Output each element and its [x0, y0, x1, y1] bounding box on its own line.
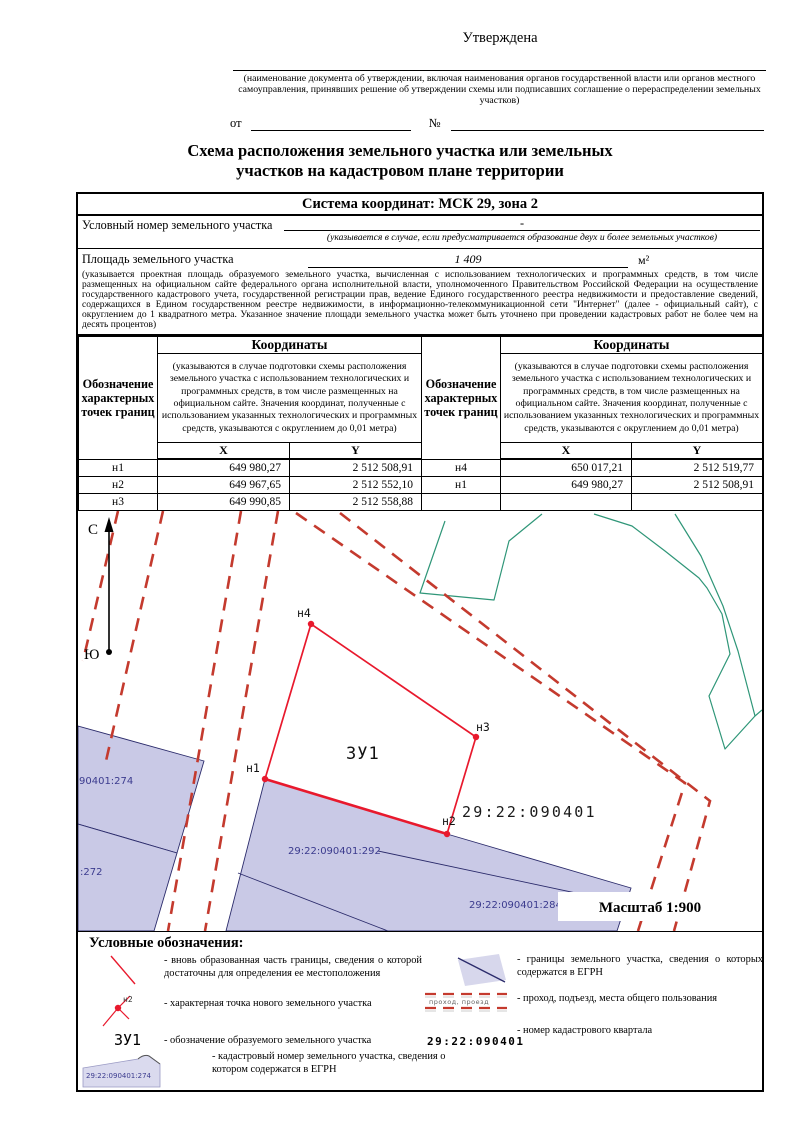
title-line-1: Схема расположения земельного участка ил… — [0, 141, 800, 160]
quarter-number-label: 29:22:090401 — [462, 803, 597, 821]
parcel-274-label: 90401:274 — [79, 776, 133, 787]
legend: Условные обозначения: - вновь образованн… — [78, 931, 762, 1086]
x-value: 649 967,65 — [158, 477, 290, 494]
new-boundary-line-icon — [108, 954, 138, 986]
point-n4-dot — [308, 621, 314, 627]
coords-note-right: (указываются в случае подготовки схемы р… — [501, 354, 763, 443]
legend-item-new-boundary: - вновь образованная часть границы, свед… — [164, 955, 422, 980]
map-drawing: н1 н2 н3 н4 ЗУ1 29:22:090401 90401:274 :… — [78, 511, 762, 931]
y-value: 2 512 519,77 — [632, 459, 763, 477]
area-label: Площадь земельного участка — [78, 252, 282, 268]
cadastral-map: н1 н2 н3 н4 ЗУ1 29:22:090401 90401:274 :… — [78, 511, 762, 931]
x-value: 649 990,85 — [158, 494, 290, 511]
y-value: 2 512 558,88 — [290, 494, 422, 511]
parcel-284-label: 29:22:090401:284 — [469, 900, 562, 911]
passage-icon-label: проход, проезд — [429, 998, 489, 1006]
point-n4-label: н4 — [297, 606, 311, 620]
conditional-number-note: (указывается в случае, если предусматрив… — [284, 231, 760, 243]
point-name: н3 — [79, 494, 158, 511]
number-label: № — [429, 116, 441, 131]
table-row: н2 649 967,65 2 512 552,10 н1 649 980,27… — [79, 477, 763, 494]
legend-item-new-point: - характерная точка нового земельного уч… — [164, 998, 464, 1011]
new-point-icon: н2 — [100, 992, 144, 1030]
x-value: 650 017,21 — [501, 459, 632, 477]
x-value: 649 980,27 — [501, 477, 632, 494]
egrn-parcel-number-icon: 29:22:090401:274 — [82, 1052, 162, 1088]
legend-item-passage: - проход, подъезд, места общего пользова… — [517, 993, 764, 1006]
points-header-left: Обозначение характерных точек границ — [79, 337, 158, 460]
parcel-292-label: 29:22:090401:292 — [288, 846, 381, 857]
table-row: н3 649 990,85 2 512 558,88 — [79, 494, 763, 511]
passage-icon: проход, проезд — [423, 989, 511, 1013]
coords-header-right: Координаты — [501, 337, 763, 354]
point-n1-dot — [262, 776, 268, 782]
y-header-right: Y — [632, 443, 763, 460]
legend-item-zu1: - обозначение образуемого земельного уча… — [164, 1035, 464, 1048]
scale-label: Масштаб 1:900 — [599, 900, 701, 916]
from-label: от — [230, 116, 242, 131]
x-value: 649 980,27 — [158, 459, 290, 477]
quarter-number-icon: 29:22:090401 — [427, 1035, 524, 1048]
north-label: С — [88, 522, 98, 538]
number-blank-line — [451, 116, 764, 131]
point-name: н1 — [422, 477, 501, 494]
x-header-left: X — [158, 443, 290, 460]
point-icon-label: н2 — [123, 995, 133, 1004]
point-name: н2 — [79, 477, 158, 494]
table-row: н1 649 980,27 2 512 508,91 н4 650 017,21… — [79, 459, 763, 477]
area-note: (указывается проектная площадь образуемо… — [78, 268, 762, 336]
coords-note-left: (указываются в случае подготовки схемы р… — [158, 354, 422, 443]
document-frame: Система координат: МСК 29, зона 2 Условн… — [76, 192, 764, 1092]
point-n2-label: н2 — [442, 814, 456, 828]
point-name — [422, 494, 501, 511]
south-label: Ю — [84, 647, 99, 663]
y-value: 2 512 508,91 — [290, 459, 422, 477]
coordinate-system-header: Система координат: МСК 29, зона 2 — [78, 194, 762, 216]
y-header-left: Y — [290, 443, 422, 460]
point-n3-dot — [473, 734, 479, 740]
approval-note: (наименование документа об утверждении, … — [233, 70, 766, 106]
legend-item-egrn-boundary: - границы земельного участка, сведения о… — [517, 954, 763, 979]
x-header-right: X — [501, 443, 632, 460]
point-n1-label: н1 — [246, 761, 260, 775]
coords-header-left: Координаты — [158, 337, 422, 354]
point-name: н1 — [79, 459, 158, 477]
legend-item-egrn-number: - кадастровый номер земельного участка, … — [212, 1051, 464, 1076]
egrn-boundary-icon — [455, 952, 509, 988]
zu1-label: ЗУ1 — [346, 744, 380, 764]
coordinates-table: Обозначение характерных точек границ Коо… — [78, 336, 763, 511]
point-n3-label: н3 — [476, 720, 490, 734]
approval-from-line: от № — [230, 115, 800, 131]
document-title: Схема расположения земельного участка ил… — [0, 141, 800, 180]
area-value: 1 409 — [308, 251, 628, 268]
conditional-number-row: Условный номер земельного участка - (ука… — [78, 216, 762, 249]
approved-stamp: Утверждена — [0, 30, 800, 47]
legend-item-quarter-number: - номер кадастрового квартала — [517, 1025, 764, 1038]
area-unit: м² — [638, 253, 649, 268]
x-value — [501, 494, 632, 511]
date-blank-line — [251, 116, 411, 131]
points-header-right: Обозначение характерных точек границ — [422, 337, 501, 460]
y-value: 2 512 508,91 — [632, 477, 763, 494]
point-name: н4 — [422, 459, 501, 477]
legend-heading: Условные обозначения: — [89, 935, 244, 952]
area-row: Площадь земельного участка 1 409 м² — [78, 249, 762, 268]
conditional-number-label: Условный номер земельного участка — [78, 216, 284, 248]
document-page: Утверждена (наименование документа об ут… — [0, 0, 800, 1131]
parcel-272-label: :272 — [80, 867, 102, 878]
point-n2-dot — [444, 831, 450, 837]
zu1-icon: ЗУ1 — [114, 1031, 141, 1049]
egrn-number-icon-label: 29:22:090401:274 — [86, 1072, 152, 1080]
y-value — [632, 494, 763, 511]
conditional-number-value: - — [284, 216, 760, 231]
y-value: 2 512 552,10 — [290, 477, 422, 494]
title-line-2: участков на кадастровом плане территории — [0, 161, 800, 180]
